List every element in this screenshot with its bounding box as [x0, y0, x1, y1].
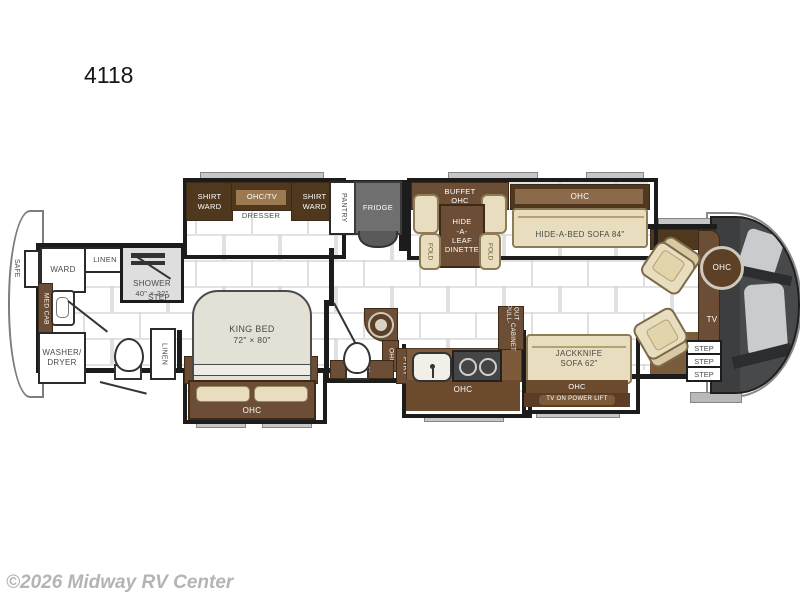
shower-door-line: [136, 256, 171, 279]
sofa-ohc-label: OHC: [571, 192, 590, 202]
step-label: STEP: [694, 357, 714, 366]
pantry-label: PANTRY: [338, 193, 347, 223]
linen-label: LINEN: [93, 255, 117, 264]
ward-label: WARD: [303, 202, 327, 211]
king-bed-size: 72" × 80": [233, 335, 270, 346]
wall: [177, 330, 182, 373]
dresser: DRESSER: [231, 210, 291, 222]
jackknife-slide-floor: TV ON POWER LIFT: [524, 393, 630, 407]
pantry: PANTRY: [329, 181, 356, 235]
step-label: STEP: [148, 293, 170, 303]
safe-label: SAFE: [11, 250, 22, 286]
shirt-label: SHIRT: [303, 192, 327, 201]
sofa-ohc: OHC: [510, 184, 650, 210]
king-bed-label: KING BED: [229, 324, 274, 335]
step-label: STEP: [694, 344, 714, 353]
wall: [647, 224, 717, 229]
med-cab-label: MED CAB: [41, 293, 49, 325]
cooktop: [452, 350, 502, 382]
pull-out-cabinet: PULL-OUT CABINET: [498, 306, 524, 350]
fold-label: FOLD: [487, 243, 494, 260]
dash-tv: TV: [702, 314, 722, 326]
kitchen-sink: [412, 352, 452, 382]
jackknife-sofa: JACKKNIFE SOFA 62": [526, 334, 632, 384]
wall: [329, 248, 334, 306]
ohc-tv-label: OHC/TV: [247, 192, 277, 201]
shirt-wardrobe-left: SHIRT WARD: [186, 182, 233, 221]
hide-a-bed-sofa: HIDE-A-BED SOFA 84": [512, 208, 648, 248]
rear-toilet: [114, 338, 144, 372]
buffet-label: BUFFET: [445, 187, 476, 196]
dinette-chair-left: [413, 194, 439, 234]
ward-label: WARD: [198, 202, 222, 211]
wardrobe-label: WARD: [50, 265, 75, 275]
pull-out-label-2: CABINET: [507, 323, 515, 351]
fridge: FRIDGE: [354, 181, 402, 235]
step-label: STEP: [694, 370, 714, 379]
jackknife-ohc-label: OHC: [568, 382, 586, 391]
fridge-label: FRIDGE: [363, 203, 393, 212]
floorplan-page: { "title": "4118", "watermark": "©2026 M…: [0, 0, 800, 600]
bath-sink: [51, 290, 75, 326]
washer-label-1: WASHER/: [42, 348, 81, 358]
fold-chair-left: FOLD: [419, 233, 441, 270]
hide-a-bed-label: HIDE-A-BED SOFA 84": [535, 230, 624, 240]
rear-step-label: STEP: [142, 292, 176, 304]
dinette-label-1: HIDE: [452, 217, 471, 226]
dresser-label: DRESSER: [242, 211, 280, 220]
kitchen-ohc-label: OHC: [454, 385, 473, 395]
ohc-tv-cabinet: OHC/TV: [231, 182, 293, 211]
front-ohc-label: OHC: [713, 263, 732, 273]
shower-label: SHOWER: [133, 279, 171, 289]
bed-pillow-band: [194, 364, 310, 376]
half-bath-toilet: [343, 342, 371, 374]
fold-chair-right: FOLD: [479, 233, 501, 270]
dinette-label-4: DINETTE: [445, 245, 479, 254]
pull-out-label-1: PULL-OUT: [504, 305, 519, 324]
washer-dryer: WASHER/ DRYER: [38, 332, 86, 384]
shirt-label: SHIRT: [198, 192, 222, 201]
front-ohc-circle: OHC: [700, 246, 744, 290]
wall: [324, 300, 329, 382]
linen-closet-bedroom: LINEN: [150, 328, 176, 380]
bed-footboard-ohc: OHC: [188, 380, 316, 420]
kitchen-slide-floor: OHC: [406, 380, 520, 411]
dash-tv-label: TV: [707, 315, 718, 325]
tv-power-lift-label: TV ON POWER LIFT: [546, 396, 607, 404]
bed-ohc-label: OHC: [243, 406, 262, 416]
linen-label-2: LINEN: [159, 343, 168, 365]
washer-label-2: DRYER: [47, 358, 76, 368]
jackknife-label-1: JACKKNIFE: [556, 349, 603, 359]
entry-step-3: STEP: [686, 366, 722, 382]
jackknife-ohc: OHC: [526, 380, 628, 393]
dinette-label-2: -A-: [457, 227, 468, 236]
fold-label: FOLD: [427, 243, 434, 260]
jackknife-label-2: SOFA 62": [560, 359, 597, 369]
dinette-label-3: LEAF: [452, 236, 472, 245]
